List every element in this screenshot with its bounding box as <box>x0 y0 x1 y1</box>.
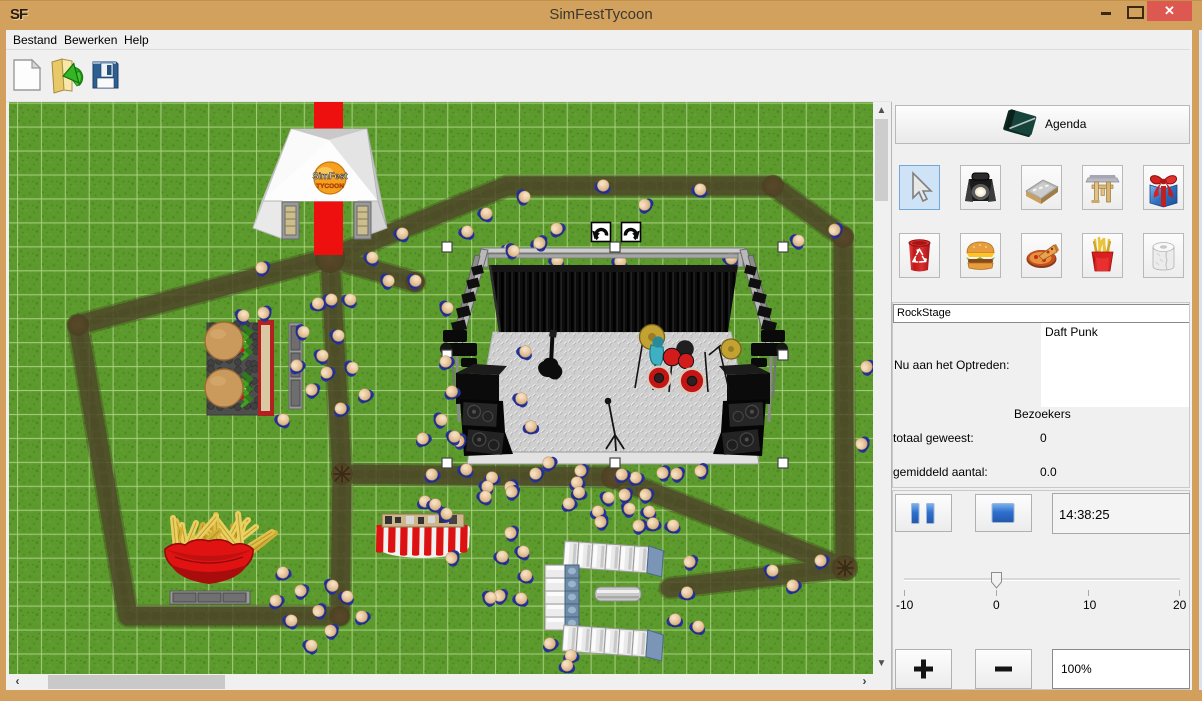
svg-text:SimFest: SimFest <box>312 171 347 181</box>
svg-text:TYCOON: TYCOON <box>316 183 344 190</box>
